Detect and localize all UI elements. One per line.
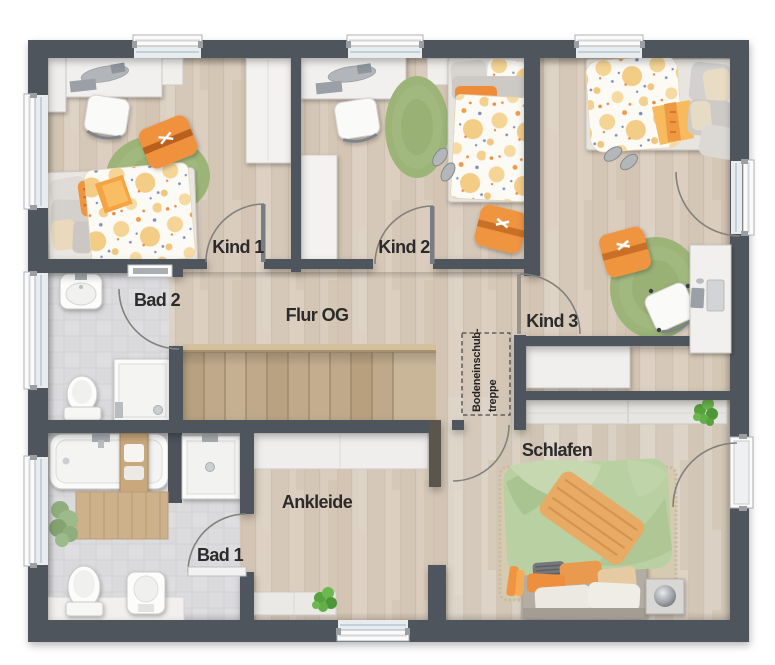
svg-text:treppe: treppe [487,380,499,413]
svg-text:Bad 2: Bad 2 [134,290,181,310]
svg-text:Kind 2: Kind 2 [378,237,430,257]
svg-text:Bodeneinschub-: Bodeneinschub- [471,328,483,412]
svg-text:Bad 1: Bad 1 [197,545,244,565]
svg-text:Kind 1: Kind 1 [212,237,264,257]
svg-text:Ankleide: Ankleide [282,492,353,512]
svg-text:Flur OG: Flur OG [286,305,349,325]
svg-text:Kind 3: Kind 3 [526,311,578,331]
svg-text:Schlafen: Schlafen [522,440,592,460]
